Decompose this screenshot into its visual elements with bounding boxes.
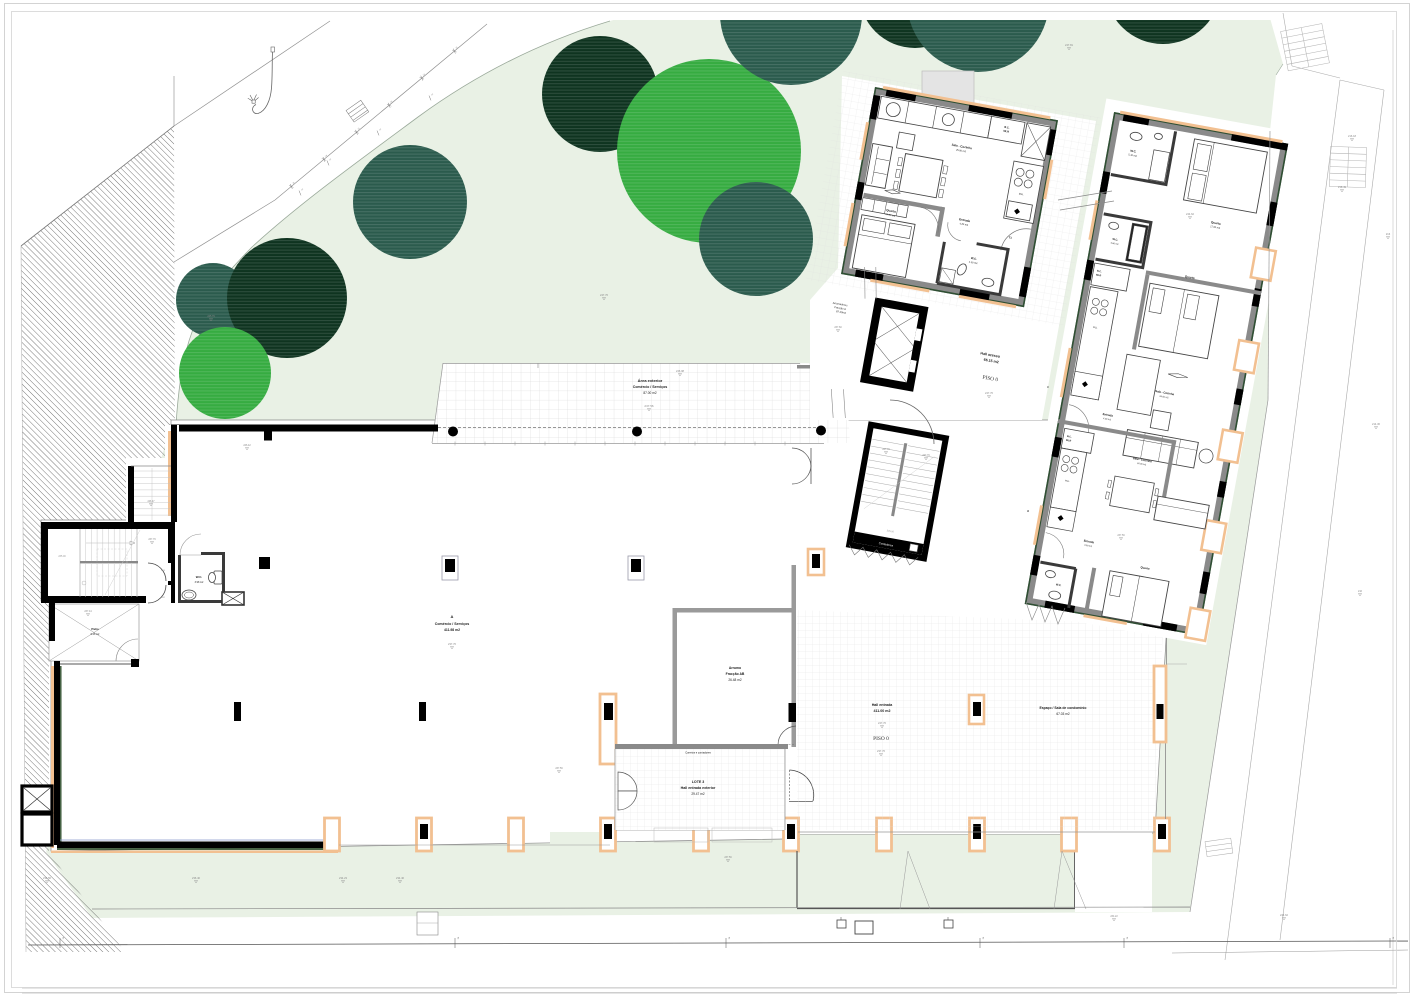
svg-text:216.18: 216.18 [1348,134,1356,138]
svg-text:237.56: 237.56 [644,404,654,408]
svg-text:Hall entrada exterior: Hall entrada exterior [681,786,716,790]
svg-text:PISO 0: PISO 0 [873,736,889,742]
svg-text:245.79: 245.79 [207,315,215,318]
svg-text:247.76: 247.76 [878,721,886,725]
svg-text:236.56: 236.56 [43,876,51,880]
svg-text:218.49: 218.49 [1338,185,1346,189]
svg-text:Comércio / Serviços: Comércio / Serviços [435,622,470,626]
svg-text:237.56: 237.56 [1117,534,1125,537]
svg-text:214.36: 214.36 [1372,422,1380,426]
svg-text:234.46: 234.46 [396,876,404,880]
svg-text:Hall entrada: Hall entrada [872,703,894,707]
svg-text:LOTE 3: LOTE 3 [692,780,705,784]
svg-text:247.76: 247.76 [985,391,993,395]
svg-text:246.47: 246.47 [147,501,155,503]
svg-text:6.26 m2: 6.26 m2 [91,633,100,636]
svg-text:236.40: 236.40 [192,876,200,880]
svg-text:247.81: 247.81 [1065,43,1073,47]
svg-text:Correios e contadores: Correios e contadores [685,751,711,755]
svg-text:235.00: 235.00 [58,555,66,558]
svg-text:c: c [1047,385,1049,389]
svg-text:246.42: 246.42 [243,444,251,447]
svg-text:244.62: 244.62 [1280,913,1288,917]
svg-text:237.56: 237.56 [724,856,732,859]
svg-text:237.76: 237.76 [877,749,885,753]
svg-text:247.76: 247.76 [600,293,608,297]
svg-text:Fracção AB: Fracção AB [726,672,745,676]
svg-text:29.47 m2: 29.47 m2 [691,792,705,796]
svg-text:237.56: 237.56 [555,767,563,770]
svg-text:Arrumo: Arrumo [729,666,741,670]
svg-text:216: 216 [1358,590,1363,593]
svg-text:234.23: 234.23 [339,876,347,880]
svg-text:Comércio / Serviços: Comércio / Serviços [633,385,668,389]
svg-text:247.76: 247.76 [882,448,890,451]
svg-text:87.00 m2: 87.00 m2 [643,391,657,395]
svg-text:26.48 m2: 26.48 m2 [728,678,742,682]
svg-text:216: 216 [1386,232,1391,236]
svg-text:237.76: 237.76 [148,538,156,541]
svg-text:237.44: 237.44 [84,610,92,613]
svg-text:A: A [451,614,454,619]
svg-text:a: a [1027,509,1029,513]
svg-text:411.00 m2: 411.00 m2 [874,709,891,713]
svg-text:Patio: Patio [91,627,99,631]
svg-text:237.76: 237.76 [448,642,456,646]
svg-text:244.62: 244.62 [1186,212,1194,216]
svg-text:Espaço / Sala de condomínio: Espaço / Sala de condomínio [1040,706,1087,710]
svg-text:234.22: 234.22 [1110,915,1118,918]
svg-text:237.60: 237.60 [834,326,842,329]
svg-text:246.98: 246.98 [676,369,684,373]
svg-text:67.03 m2: 67.03 m2 [1056,712,1070,716]
svg-text:Área exterior: Área exterior [638,378,663,383]
svg-text:247.76: 247.76 [922,454,930,457]
svg-text:411.98 m2: 411.98 m2 [444,628,460,632]
svg-text:W.C.: W.C. [196,575,203,579]
svg-text:3.98 m2: 3.98 m2 [195,581,204,584]
